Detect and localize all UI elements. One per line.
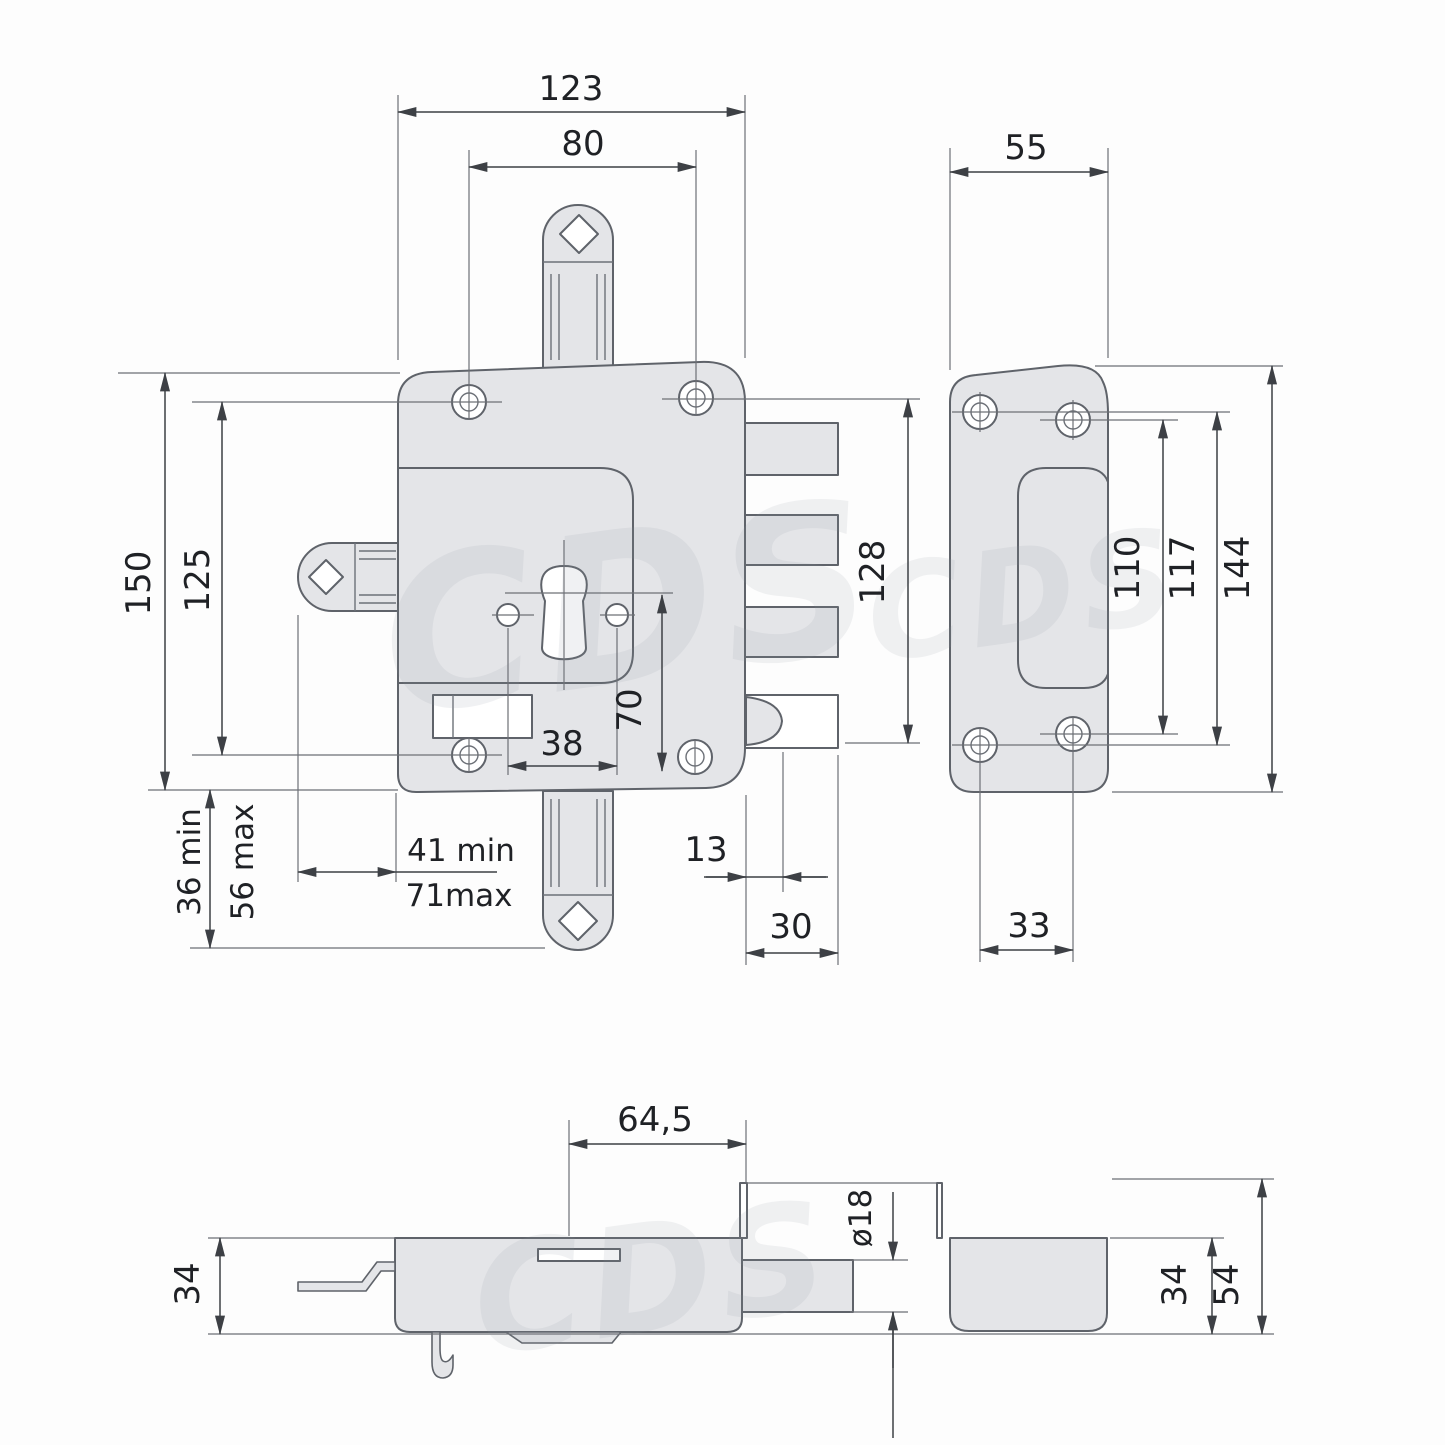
svg-text:71max: 71max [406,878,513,914]
svg-text:117: 117 [1163,536,1203,601]
svg-text:70: 70 [610,688,650,731]
hook-catch [432,1332,453,1378]
svg-text:125: 125 [178,548,218,613]
svg-text:80: 80 [561,124,604,164]
dim-bolt-throw: 30 [746,755,838,965]
svg-text:123: 123 [539,69,604,109]
dim-body-depth: 34 [168,1238,220,1334]
dim-bolt-diameter: ø18 [843,1189,908,1438]
dim-spindle-min-max: 36 min 56 max [172,790,545,948]
strike-box-section [950,1238,1107,1331]
svg-text:34: 34 [1155,1263,1195,1306]
svg-text:13: 13 [684,830,727,870]
svg-text:150: 150 [119,551,159,616]
svg-text:144: 144 [1218,536,1258,601]
bottom-spindle [543,791,613,950]
svg-text:36 min: 36 min [172,808,208,916]
lock-dimension-drawing: CDS CDS CDS 123 80 150 125 36 min 56 max… [0,0,1445,1445]
svg-text:54: 54 [1207,1263,1247,1306]
svg-text:56 max: 56 max [225,804,261,921]
svg-text:128: 128 [853,540,893,605]
svg-text:33: 33 [1007,906,1050,946]
top-spindle [543,205,613,370]
svg-text:ø18: ø18 [843,1189,879,1247]
spring-lever [298,1262,395,1291]
svg-text:38: 38 [540,724,583,764]
dim-plate-width: 55 [950,128,1108,370]
svg-text:64,5: 64,5 [617,1100,693,1140]
svg-text:30: 30 [769,907,812,947]
dim-box-total-depth: 54 [1207,1179,1262,1334]
box-flange [937,1183,942,1238]
svg-text:55: 55 [1004,128,1047,168]
drawing-canvas: CDS CDS CDS 123 80 150 125 36 min 56 max… [0,0,1445,1445]
svg-text:CDS: CDS [462,1168,843,1390]
svg-text:110: 110 [1108,536,1148,601]
svg-text:34: 34 [168,1262,208,1305]
svg-text:41 min: 41 min [407,833,515,869]
